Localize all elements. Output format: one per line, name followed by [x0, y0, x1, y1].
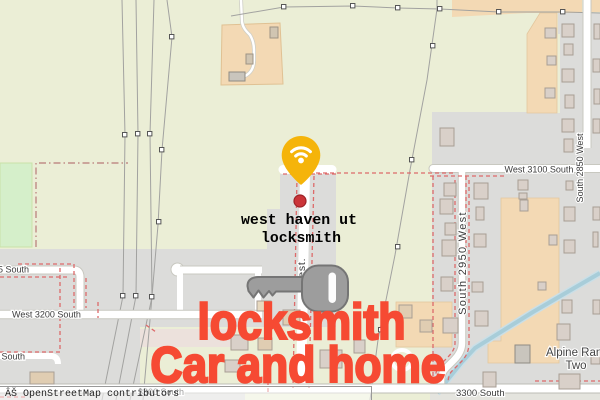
svg-text:South 2850 West: South 2850 West: [575, 133, 585, 202]
svg-text:West 3100 South: West 3100 South: [505, 165, 574, 175]
svg-text:Car and home: Car and home: [151, 337, 446, 393]
svg-text:ÂŠ OpenStreetMap contributors: ÂŠ OpenStreetMap contributors: [5, 386, 179, 400]
svg-text:3300 South: 3300 South: [456, 388, 505, 399]
svg-text:west haven ut: west haven ut: [241, 212, 357, 229]
svg-text:locksmith: locksmith: [261, 230, 341, 247]
svg-text:Alpine Ranch: Alpine Ranch: [546, 347, 600, 359]
svg-text:5 South: 5 South: [0, 265, 29, 275]
svg-text:6 South: 6 South: [0, 352, 25, 362]
svg-text:West 3200 South: West 3200 South: [12, 310, 81, 320]
svg-text:South 2950 West: South 2950 West: [457, 211, 469, 315]
svg-text:Two: Two: [565, 360, 586, 372]
